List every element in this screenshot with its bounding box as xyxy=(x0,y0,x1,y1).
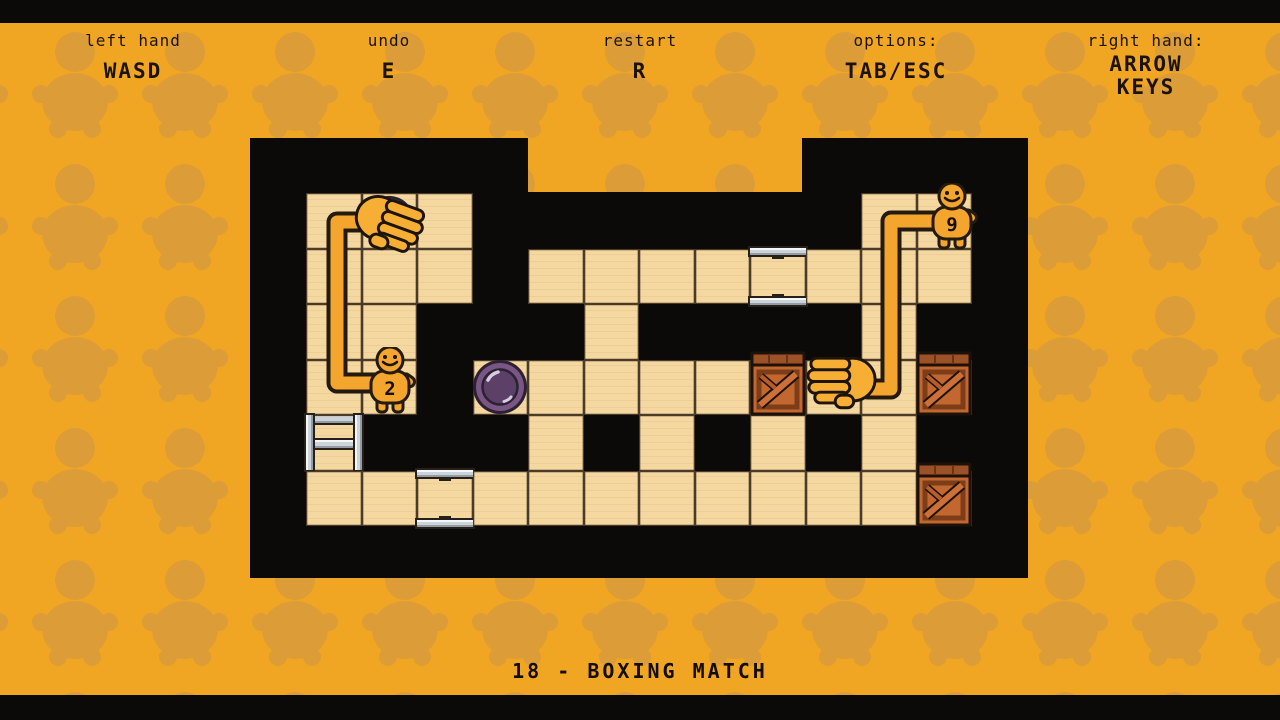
hint-label: restart xyxy=(603,31,677,50)
hint-right-hand: right hand: ARROW KEYS xyxy=(1088,31,1205,99)
hint-label: options: xyxy=(845,31,948,50)
crate xyxy=(749,351,807,417)
level-title: 18 - BOXING MATCH xyxy=(0,659,1280,683)
crate xyxy=(915,462,973,528)
hint-left-hand: left hand WASD xyxy=(85,31,181,83)
right-hand-fist xyxy=(806,353,878,410)
hint-label: right hand: xyxy=(1088,31,1205,50)
character-9: 9 xyxy=(926,183,978,251)
top-letterbox-bar xyxy=(0,0,1280,23)
character-number: 9 xyxy=(946,214,957,236)
hint-label: undo xyxy=(368,31,411,50)
game-board[interactable]: 2 9 xyxy=(250,138,1028,578)
hint-keys: TAB/ESC xyxy=(845,59,948,83)
hint-keys: ARROW KEYS xyxy=(1094,53,1198,99)
hint-label: left hand xyxy=(85,31,181,50)
hint-options: options: TAB/ESC xyxy=(845,31,948,83)
hint-restart: restart R xyxy=(603,31,677,83)
character-2: 2 xyxy=(364,347,416,415)
character-number: 2 xyxy=(384,378,395,400)
crate xyxy=(915,351,973,417)
game-screen: left hand WASD undo E restart R options:… xyxy=(0,0,1280,720)
hint-undo: undo E xyxy=(368,31,411,83)
hint-keys: R xyxy=(603,59,677,83)
bottom-letterbox-bar xyxy=(0,695,1280,720)
hint-keys: WASD xyxy=(85,59,181,83)
hint-keys: E xyxy=(368,59,411,83)
